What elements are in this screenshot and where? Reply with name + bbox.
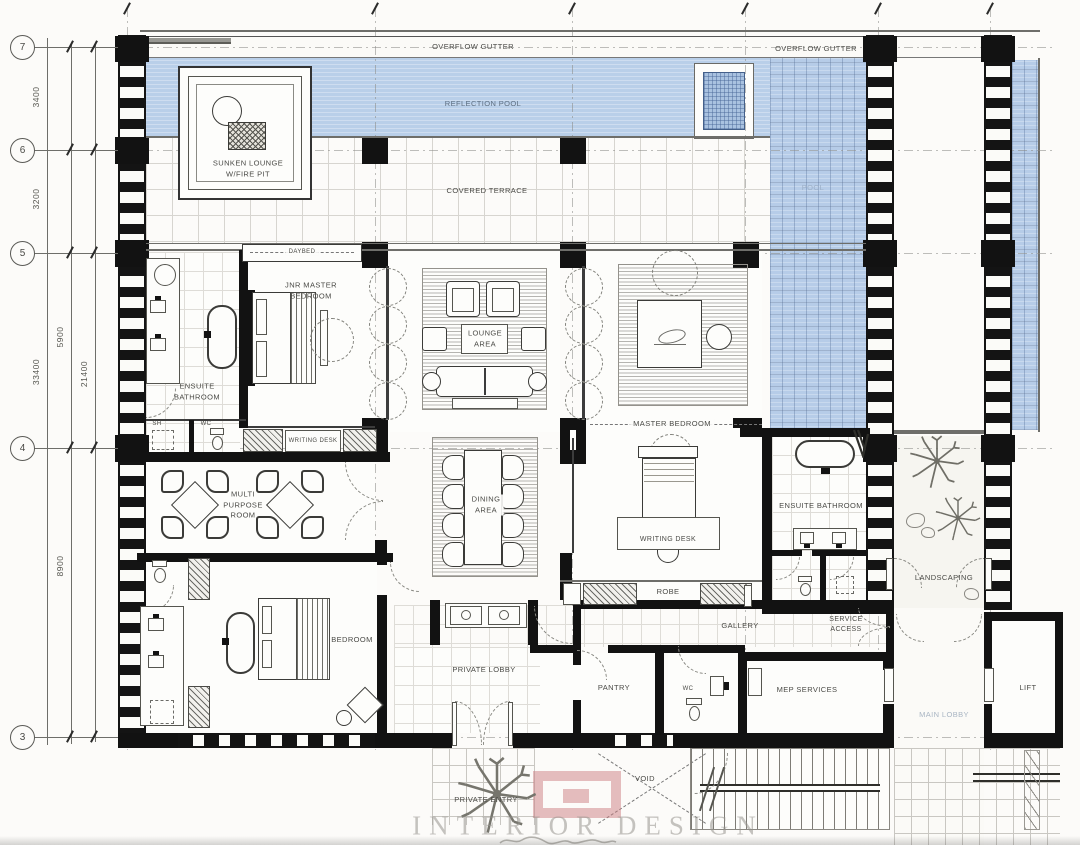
lift-wall-bottom (992, 739, 1060, 748)
mpr-chair (161, 516, 184, 539)
pool-label: POOL (802, 183, 824, 194)
bathtub (226, 612, 255, 674)
column (362, 242, 388, 268)
dim-33400: 33400 (31, 349, 41, 395)
wardrobe (188, 686, 210, 728)
pivot-panel (369, 382, 407, 420)
door-leaf (886, 558, 893, 590)
dining-chair (502, 455, 524, 480)
robe-boundary (560, 580, 762, 582)
jnr-master-bedroom-label: JNR MASTER BEDROOM (285, 281, 337, 302)
toilet-tank (152, 560, 167, 567)
column (362, 138, 388, 164)
wall-segment (189, 420, 194, 454)
pivot-panel (565, 268, 603, 306)
writing-desk-master-box (617, 517, 720, 550)
toilet-bowl (154, 568, 166, 583)
lobby-wall-right (984, 612, 992, 670)
dining-chair (502, 542, 524, 567)
shower-tray (150, 700, 174, 724)
grid-leader-line (33, 253, 118, 254)
covered-terrace-label: COVERED TERRACE (447, 186, 528, 197)
pillow (262, 606, 272, 634)
tap (836, 544, 842, 548)
side-table (336, 710, 352, 726)
armchair-cushion (492, 288, 514, 312)
grid-bubble-7: 7 (10, 35, 35, 60)
column (981, 240, 1015, 267)
gallery-label: GALLERY (721, 621, 758, 632)
void-label: VOID (635, 774, 655, 785)
niche-wall (430, 600, 440, 645)
pivot-panel (369, 306, 407, 344)
main-pool-water (770, 58, 866, 435)
stair-handrail (700, 784, 880, 792)
shower-tray (836, 576, 854, 594)
basin-bowl (461, 610, 471, 620)
pendant-circle (652, 250, 698, 296)
wc-left-label: WC (201, 420, 212, 428)
mep-services-label: MEP SERVICES (777, 685, 838, 696)
wall-segment (655, 653, 664, 735)
wardrobe (243, 429, 283, 452)
master-suite-east-wall (762, 436, 772, 606)
mpr-chair (161, 470, 184, 493)
lobby-wall-right (984, 704, 992, 748)
bed-sketch-line (654, 344, 686, 345)
pillow (256, 341, 267, 377)
tap (155, 296, 161, 300)
headboard (638, 446, 698, 458)
bathtub (207, 305, 237, 369)
pivot-panel (369, 268, 407, 306)
wall-stub (377, 553, 387, 565)
tap (804, 544, 810, 548)
v-marker-icon (852, 428, 878, 458)
wall-stub (375, 540, 387, 553)
wall-segment (118, 733, 178, 748)
tap (204, 331, 211, 338)
shower-tray (152, 430, 174, 450)
sofa-seam (484, 368, 486, 395)
toilet-tank (686, 698, 702, 705)
bed-throw (296, 598, 330, 680)
scale-bar (143, 38, 231, 44)
grid-bubble-6: 6 (10, 138, 35, 163)
toilet-bowl (800, 583, 811, 596)
side-chair (422, 327, 447, 351)
tap (821, 468, 830, 474)
sink (148, 655, 164, 668)
reflection-pool-label: REFLECTION POOL (445, 99, 521, 110)
ramp-strip (1024, 750, 1040, 830)
dining-chair (442, 542, 464, 567)
mep-wall-top (738, 652, 892, 661)
multi-purpose-room-label: MULTI PURPOSE ROOM (223, 489, 262, 521)
louver-wall-bottom (178, 733, 375, 748)
service-access-label: SERVICE ACCESS (829, 615, 862, 635)
robe-closet (583, 583, 637, 605)
dining-chair (442, 455, 464, 480)
sink (150, 300, 166, 313)
armchair-cushion (452, 288, 474, 312)
bathtub (795, 440, 855, 468)
column (981, 36, 1015, 62)
dining-chair (502, 513, 524, 538)
wall-segment (137, 553, 393, 562)
toilet-bowl (689, 706, 700, 721)
side-chair (521, 327, 546, 351)
stone (964, 588, 979, 600)
overflow-gutter-right-label: OVERFLOW GUTTER (775, 44, 857, 55)
grid-leader-line (33, 47, 118, 48)
column (560, 242, 586, 268)
dim-8900: 8900 (55, 543, 65, 589)
lift-wall-top (992, 612, 1060, 621)
sunken-lounge-label: SUNKEN LOUNGE W/FIRE PIT (213, 159, 283, 180)
mep-wall-bottom (738, 738, 892, 747)
column (560, 138, 586, 164)
writing-desk-master-label: WRITING DESK (640, 535, 696, 545)
dining-area-label: DINING AREA (469, 495, 504, 516)
round-table (422, 372, 441, 391)
roof-edge-line (140, 30, 1040, 32)
toilet-bowl (212, 436, 223, 450)
sink (832, 532, 846, 544)
mirror (154, 264, 176, 286)
column (115, 36, 149, 62)
mep-floor (747, 661, 883, 738)
mpr-chair (301, 516, 324, 539)
spa-water (703, 72, 745, 130)
right-pool-strip (1012, 60, 1038, 430)
dim-3400: 3400 (31, 74, 41, 120)
dining-chair (442, 513, 464, 538)
wall-segment (530, 645, 578, 653)
rail (973, 773, 1060, 782)
wall-segment (375, 733, 452, 748)
wc-bottom-label: WC (683, 685, 694, 693)
lounge-area-label: LOUNGE AREA (468, 329, 502, 350)
wall-segment (513, 733, 600, 748)
round-table (528, 372, 547, 391)
pivot-panel (369, 344, 407, 382)
column (981, 435, 1015, 462)
wall-segment (573, 700, 581, 736)
overflow-gutter-left-label: OVERFLOW GUTTER (432, 42, 514, 53)
pivot-panel (565, 382, 603, 420)
dining-chair (502, 484, 524, 509)
partition (248, 426, 375, 428)
pendant-circle (310, 318, 354, 362)
column (863, 36, 897, 62)
private-entry-label: PRIVATE ENTRY (454, 795, 518, 806)
sliding-door (984, 668, 994, 702)
pillow (256, 299, 267, 335)
tap (222, 638, 229, 645)
grid-bubble-5: 5 (10, 241, 35, 266)
sink (800, 532, 814, 544)
tap (153, 651, 159, 655)
dim-5900: 5900 (55, 314, 65, 360)
wall-segment (377, 595, 387, 735)
sliding-door (884, 668, 894, 702)
door-arc (390, 562, 420, 592)
grid-leader-line (33, 448, 118, 449)
louver-wall-bottom (600, 733, 673, 748)
master-bedroom-label: MASTER BEDROOM (630, 419, 714, 430)
wall-segment (137, 452, 390, 462)
sink (148, 618, 164, 631)
stone (921, 527, 935, 538)
daybed-label: DAYBED (286, 248, 319, 256)
dining-chair (442, 484, 464, 509)
grid-bubble-3: 3 (10, 725, 35, 750)
column (115, 240, 149, 267)
mep-wall-left (738, 652, 747, 747)
floor-plan-canvas: INTERIOR DESIGN 765433400320033400590089… (0, 0, 1080, 845)
grid-bubble-4: 4 (10, 436, 35, 461)
door-leaf (985, 558, 992, 590)
robe-label: ROBE (657, 587, 680, 598)
fire-pit (228, 122, 266, 150)
basin-bowl (499, 610, 509, 620)
pool-bottom-wall (740, 428, 870, 437)
linen-closet (188, 558, 210, 600)
bed-blanket (644, 460, 694, 482)
toilet-tank (798, 576, 812, 582)
column (863, 240, 897, 267)
door-leaf (744, 585, 752, 607)
bedroom-label: BEDROOM (331, 635, 373, 646)
tap (153, 614, 159, 618)
sink (150, 338, 166, 351)
wall-segment (608, 645, 745, 653)
ensuite-bathroom-left-label: ENSUITE BATHROOM (174, 382, 220, 403)
robe-cabinet (563, 583, 581, 605)
ottoman (452, 398, 518, 409)
round-side-table (706, 324, 732, 350)
wall-segment (239, 250, 248, 428)
tree-icon (908, 432, 966, 490)
grid-leader-line (33, 737, 118, 738)
tree-icon (934, 494, 982, 542)
writing-desk-jnr-label: WRITING DESK (289, 437, 338, 445)
toilet-tank (210, 428, 224, 435)
wc-sink (710, 676, 724, 696)
private-lobby-label: PRIVATE LOBBY (452, 665, 515, 676)
mep-fixture (748, 668, 762, 696)
landscaping-label: LANDSCAPING (915, 573, 973, 584)
ensuite-right-divider (820, 556, 826, 606)
grid-line-h (30, 47, 1055, 48)
pivot-panel (565, 306, 603, 344)
sh-label: SH (152, 420, 161, 428)
wall-segment (733, 418, 762, 428)
master-glass-wall (572, 438, 574, 553)
mpr-chair (301, 470, 324, 493)
watermark-logo-inner (563, 789, 589, 803)
lift-label: LIFT (1019, 683, 1036, 694)
lobby-wall-left (886, 704, 894, 748)
pantry-label: PANTRY (598, 683, 630, 694)
right-pool-edge (1038, 58, 1040, 432)
dim-21400: 21400 (79, 351, 89, 397)
wc-bottom-floor (668, 653, 745, 733)
grid-leader-line (33, 150, 118, 151)
lift-floor (992, 621, 1060, 739)
scan-shadow (0, 836, 1080, 845)
lift-wall-right (1055, 612, 1063, 748)
ensuite-bathroom-right-label: ENSUITE BATHROOM (779, 501, 863, 512)
louver-wall-mid-right (866, 35, 894, 610)
louver-wall-far-right (984, 35, 1012, 610)
dim-3200: 3200 (31, 176, 41, 222)
tap (724, 682, 729, 690)
tap (155, 334, 161, 338)
column (115, 137, 149, 164)
dim-line (47, 38, 48, 745)
pivot-panel (565, 344, 603, 382)
wardrobe (343, 429, 377, 452)
pillow (262, 640, 272, 668)
main-lobby-label: MAIN LOBBY (919, 710, 969, 721)
